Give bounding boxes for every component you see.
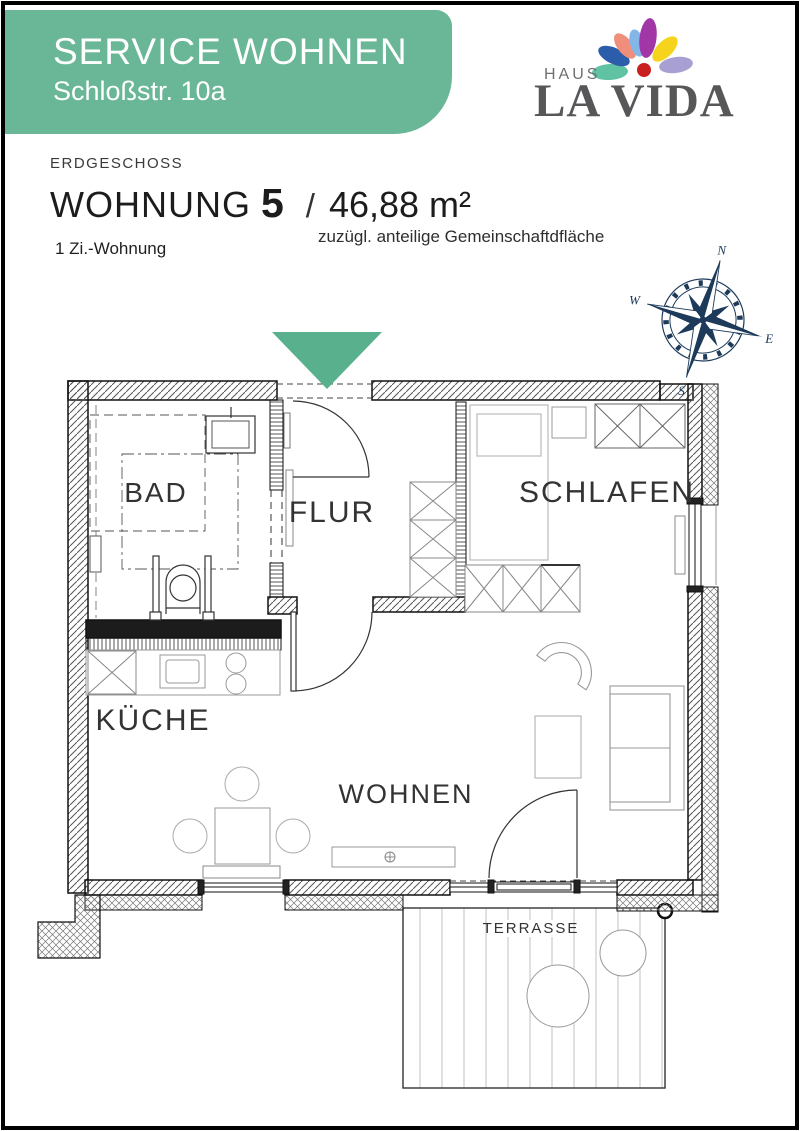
low-cabinet	[465, 565, 580, 612]
dining-set	[173, 767, 310, 864]
radiator-schlafen	[675, 516, 685, 574]
terrace: TERRASSE	[403, 904, 672, 1088]
radiator-bad	[90, 536, 101, 572]
compass-s: S	[678, 383, 685, 398]
sink	[206, 416, 255, 453]
living-furniture	[332, 631, 684, 867]
sideboard	[332, 847, 455, 867]
room-label-schlafen: SCHLAFEN	[519, 476, 695, 509]
room-label-bad: BAD	[124, 477, 188, 508]
compass-e: E	[764, 331, 773, 346]
compass-n: N	[716, 243, 727, 258]
coffee-table	[535, 716, 581, 778]
floorplan: TERRASSE	[0, 0, 800, 1131]
flur-door-leaf	[291, 612, 296, 691]
radiator-kueche	[203, 866, 280, 878]
entrance-door-arc	[293, 401, 369, 477]
room-label-terrasse: TERRASSE	[483, 920, 580, 937]
room-label-kueche: KÜCHE	[95, 704, 210, 737]
terrace-chair	[600, 930, 646, 976]
room-label-wohnen: WOHNEN	[339, 779, 474, 809]
sofa	[610, 686, 684, 810]
terrace-door-arc	[489, 790, 577, 878]
hall-closet	[410, 482, 456, 597]
nightstand	[552, 407, 586, 438]
wardrobe	[595, 404, 685, 448]
bathroom-fixtures	[90, 405, 255, 620]
compass-w: W	[629, 293, 641, 308]
entrance-arrow	[272, 332, 382, 389]
armchair	[537, 631, 603, 690]
toilet	[150, 556, 214, 620]
fridge	[88, 651, 136, 694]
flur-door-arc	[293, 612, 372, 691]
room-label-flur: FLUR	[289, 496, 375, 529]
kitchen-fixtures	[86, 650, 310, 878]
terrace-table	[527, 965, 589, 1027]
